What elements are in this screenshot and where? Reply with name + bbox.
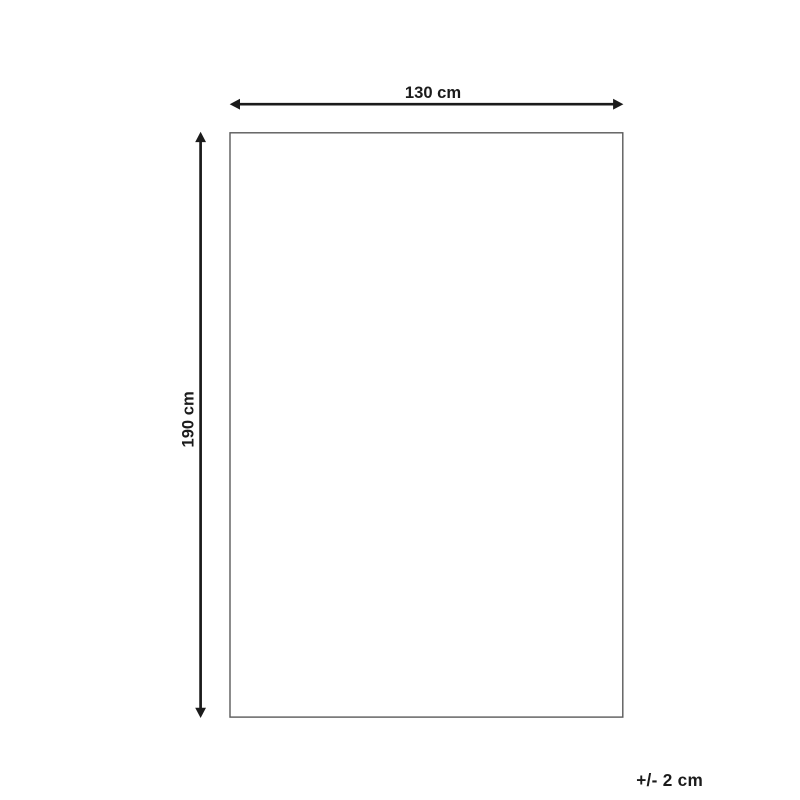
svg-text:130 cm: 130 cm (405, 83, 461, 102)
svg-text:+/- 2 cm: +/- 2 cm (636, 770, 703, 790)
svg-text:190 cm: 190 cm (179, 391, 198, 447)
